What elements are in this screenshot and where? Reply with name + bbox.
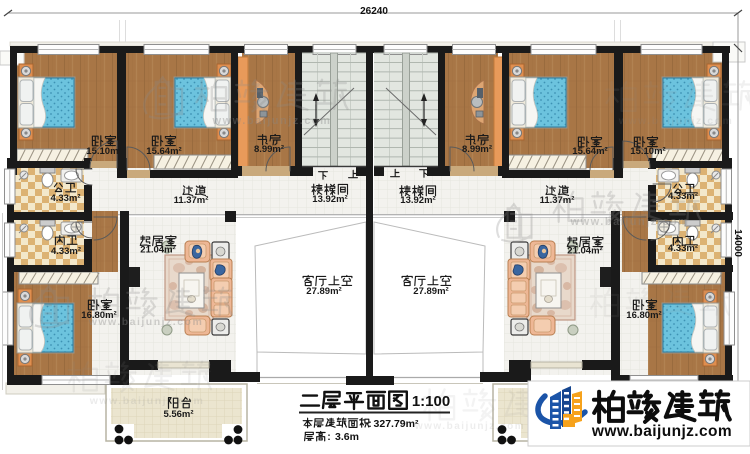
svg-text:4.33m²: 4.33m² [668, 191, 698, 202]
svg-text:4.33m²: 4.33m² [51, 246, 81, 257]
svg-text:8.99m²: 8.99m² [254, 144, 284, 155]
svg-text:15.10m²: 15.10m² [630, 146, 665, 157]
svg-text:www.baijunjz.com: www.baijunjz.com [591, 423, 732, 440]
svg-text:327.79m²: 327.79m² [374, 418, 419, 430]
svg-text:4.33m²: 4.33m² [668, 243, 698, 254]
svg-text:21.04m²: 21.04m² [567, 246, 602, 257]
svg-text:16.80m²: 16.80m² [626, 310, 661, 321]
svg-text:15.64m²: 15.64m² [146, 146, 181, 157]
svg-text:15.64m²: 15.64m² [572, 146, 607, 157]
svg-text:21.04m²: 21.04m² [140, 245, 175, 256]
svg-text:15.10m²: 15.10m² [86, 146, 121, 157]
svg-text:11.37m²: 11.37m² [174, 195, 209, 206]
svg-text::: : [327, 431, 331, 443]
svg-text:16.80m²: 16.80m² [81, 310, 116, 321]
svg-text:4.33m²: 4.33m² [50, 193, 80, 204]
svg-text:3.6m: 3.6m [335, 431, 359, 443]
svg-text:www.baijunjz.com: www.baijunjz.com [618, 115, 734, 127]
svg-text:14000: 14000 [732, 229, 743, 257]
svg-text:1:100: 1:100 [412, 393, 450, 410]
svg-text:11.37m²: 11.37m² [540, 195, 575, 206]
svg-text:8.99m²: 8.99m² [462, 144, 492, 155]
svg-text:26240: 26240 [360, 6, 388, 17]
svg-text:27.89m²: 27.89m² [413, 286, 448, 297]
svg-text:5.56m²: 5.56m² [163, 409, 193, 420]
svg-text:www.baijunjz.com: www.baijunjz.com [414, 421, 525, 432]
svg-text:www.baijunjz.com: www.baijunjz.com [570, 216, 690, 228]
svg-text::: : [368, 418, 372, 430]
svg-text:www.baijunjz.com: www.baijunjz.com [212, 115, 332, 127]
svg-text:13.92m²: 13.92m² [312, 194, 347, 205]
svg-text:27.89m²: 27.89m² [306, 286, 341, 297]
svg-text:13.92m²: 13.92m² [400, 195, 435, 206]
